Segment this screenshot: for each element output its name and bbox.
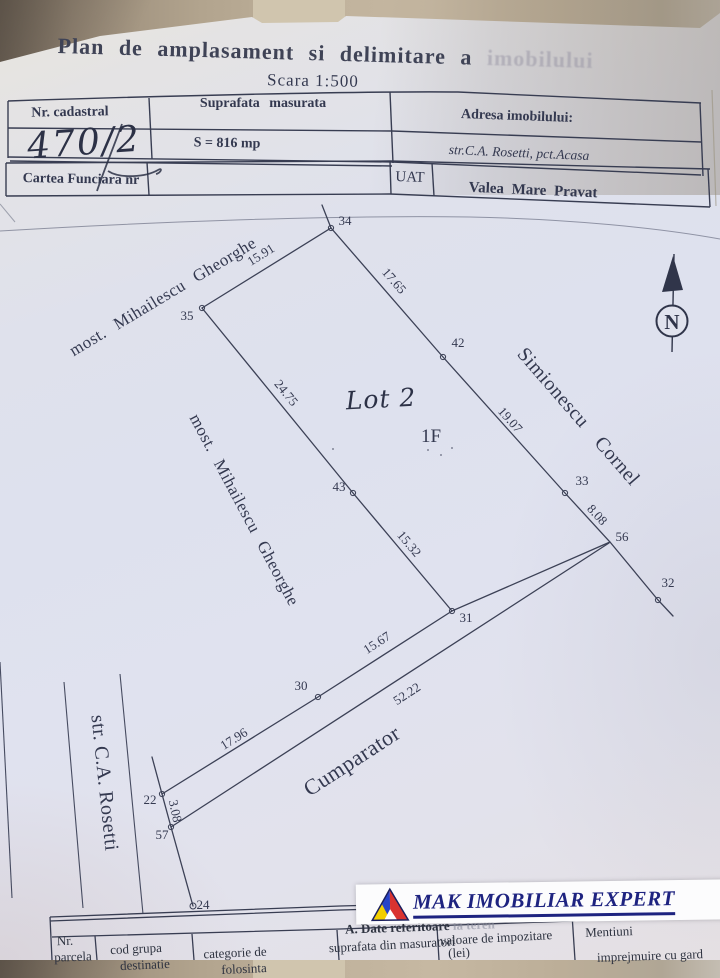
suprafata-value: S = 816 mp xyxy=(194,135,261,152)
point-label-33: 33 xyxy=(576,473,589,489)
photographed-cadastral-plan: { "title": { "full": "Plan de amplasamen… xyxy=(0,0,720,960)
nr-cadastral-value-handwritten: 470/2 xyxy=(26,119,142,168)
page-title-faded: imobilului xyxy=(487,45,594,73)
col-valoare-line2: (lei) xyxy=(448,944,470,961)
col-categorie-line2: folosinta xyxy=(221,960,267,978)
logo-triangle-icon xyxy=(368,887,412,924)
point-label-32: 32 xyxy=(662,575,675,591)
point-label-34: 34 xyxy=(339,213,352,229)
building-storeys-label: 1F xyxy=(421,426,441,448)
col-cod-line2: destinatie xyxy=(120,956,170,974)
nr-cadastral-label: Nr. cadastral xyxy=(31,104,109,121)
col-nr-line1: Nr. xyxy=(57,933,74,950)
point-label-56: 56 xyxy=(616,529,629,545)
col-cod-line1: cod grupa xyxy=(110,940,162,958)
cartea-funciara-label: Cartea Funciara nr xyxy=(23,171,140,189)
north-arrow-head xyxy=(662,256,683,292)
north-arrow: N xyxy=(657,254,688,352)
lot-label-handwritten: Lot 2 xyxy=(345,383,417,416)
suprafata-label: Suprafata masurata xyxy=(200,96,326,112)
north-letter: N xyxy=(664,310,679,334)
street-lines xyxy=(0,662,143,914)
dust-specks xyxy=(332,447,453,456)
scale-label: Scara 1:500 xyxy=(267,70,359,92)
logo-text: MAK IMOBILIAR EXPERT xyxy=(413,886,675,919)
point-label-35: 35 xyxy=(181,308,194,324)
point-label-43: 43 xyxy=(333,479,346,495)
point-label-31: 31 xyxy=(460,610,473,626)
point-label-22: 22 xyxy=(144,792,157,808)
col-nr-line2: parcela xyxy=(54,948,92,965)
point-label-24: 24 xyxy=(197,897,210,913)
point-label-42: 42 xyxy=(452,335,465,351)
point-label-57: 57 xyxy=(156,827,169,843)
uat-label: UAT xyxy=(395,169,425,187)
point-label-30: 30 xyxy=(295,678,308,694)
mentiuni-value: imprejmuire cu gard xyxy=(597,946,704,966)
logo-box: MAK IMOBILIAR EXPERT xyxy=(356,879,720,924)
col-mentiuni: Mentiuni xyxy=(585,923,633,941)
survey-point-markers xyxy=(159,225,660,909)
